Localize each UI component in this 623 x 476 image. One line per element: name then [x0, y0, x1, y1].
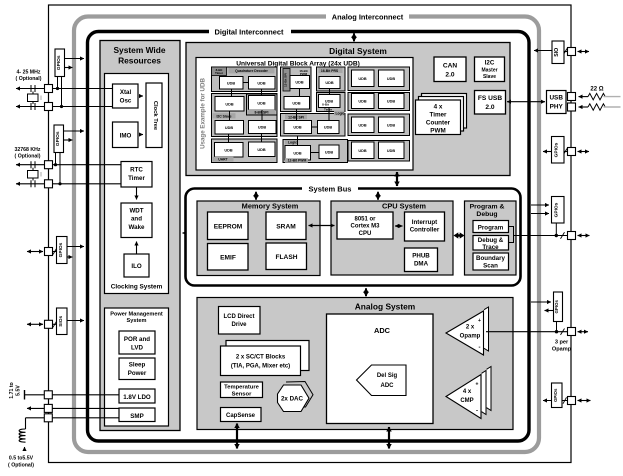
- svg-text:Program: Program: [478, 224, 504, 231]
- svg-text:22 Ω: 22 Ω: [590, 87, 603, 93]
- svg-text:2.0: 2.0: [485, 104, 494, 111]
- svg-text:Opamp: Opamp: [552, 347, 572, 353]
- svg-text:GPIOs: GPIOs: [554, 202, 560, 217]
- svg-text:( Optional): ( Optional): [15, 154, 41, 160]
- svg-text:UDB: UDB: [358, 100, 366, 104]
- svg-text:ILO: ILO: [131, 263, 141, 270]
- svg-text:UDB: UDB: [257, 81, 265, 85]
- svg-text:I2C: I2C: [485, 60, 495, 67]
- svg-text:FLASH: FLASH: [276, 254, 298, 261]
- svg-text:UDB: UDB: [387, 100, 395, 104]
- svg-text:Xtal: Xtal: [120, 89, 132, 96]
- svg-text:Quadrature Decoder: Quadrature Decoder: [235, 69, 268, 73]
- svg-text:UDB: UDB: [227, 81, 235, 85]
- svg-text:EMIF: EMIF: [220, 255, 236, 262]
- svg-text:Osc: Osc: [120, 98, 132, 105]
- svg-text:1.71 to: 1.71 to: [9, 382, 15, 398]
- svg-text:Opamp: Opamp: [460, 334, 481, 340]
- svg-text:ADC: ADC: [374, 326, 391, 335]
- svg-text:Usage Example for UDB: Usage Example for UDB: [200, 78, 207, 149]
- svg-text:Analog System: Analog System: [355, 302, 416, 312]
- svg-text:3 per: 3 per: [555, 340, 569, 346]
- svg-text:UDB: UDB: [387, 77, 395, 81]
- svg-text:Digital System: Digital System: [329, 46, 387, 56]
- svg-text:Sleep: Sleep: [129, 362, 146, 369]
- svg-text:GPIOs: GPIOs: [56, 55, 62, 70]
- svg-text:EEPROM: EEPROM: [214, 224, 243, 231]
- svg-text:Scan: Scan: [483, 263, 498, 270]
- svg-text:0.5 to5.5V: 0.5 to5.5V: [9, 456, 34, 462]
- svg-text:( Optional): ( Optional): [8, 463, 34, 469]
- svg-text:8051 or: 8051 or: [354, 217, 376, 223]
- svg-text:UDB: UDB: [257, 148, 265, 152]
- svg-text:CAN: CAN: [443, 63, 458, 70]
- svg-text:UDB: UDB: [225, 102, 233, 106]
- svg-text:Logic: Logic: [335, 112, 344, 116]
- svg-text:Timer: Timer: [215, 71, 224, 75]
- svg-text:GPIOs: GPIOs: [58, 242, 64, 257]
- svg-text:-: -: [476, 409, 478, 415]
- svg-text:Wake: Wake: [129, 224, 145, 231]
- svg-text:Timer: Timer: [128, 175, 145, 182]
- svg-text:+: +: [476, 382, 479, 388]
- svg-text:Drive: Drive: [231, 322, 247, 328]
- svg-text:FS USB: FS USB: [478, 95, 502, 102]
- svg-text:IMO: IMO: [120, 133, 132, 140]
- svg-text:Power Management: Power Management: [110, 312, 163, 318]
- svg-text:SMP: SMP: [130, 413, 143, 420]
- svg-text:Del Sig: Del Sig: [377, 373, 398, 379]
- svg-text:PHUB: PHUB: [412, 253, 430, 260]
- svg-text:2 x: 2 x: [466, 325, 475, 331]
- svg-text:USB: USB: [549, 95, 563, 102]
- svg-text:CPU System: CPU System: [382, 202, 426, 211]
- svg-text:2.0: 2.0: [445, 72, 454, 79]
- svg-text:UDB: UDB: [325, 81, 333, 85]
- svg-text:-: -: [479, 345, 481, 351]
- svg-text:UDB: UDB: [224, 148, 232, 152]
- svg-text:RTC: RTC: [130, 167, 143, 174]
- svg-text:System Wide: System Wide: [113, 45, 165, 55]
- svg-text:LCD Direct: LCD Direct: [223, 314, 254, 320]
- svg-text:UDB: UDB: [358, 123, 366, 127]
- svg-text:UDB: UDB: [325, 100, 333, 104]
- svg-text:Digital Interconnect: Digital Interconnect: [215, 27, 285, 36]
- svg-text:UDB: UDB: [358, 77, 366, 81]
- svg-text:2x DAC: 2x DAC: [281, 396, 304, 403]
- svg-text:Temperature: Temperature: [224, 385, 259, 391]
- svg-text:GPIOs: GPIOs: [55, 131, 61, 146]
- svg-text:Resources: Resources: [118, 56, 161, 66]
- svg-text:GPIOs: GPIOs: [553, 388, 558, 402]
- svg-text:UDB: UDB: [387, 149, 395, 153]
- svg-text:UDB: UDB: [225, 126, 233, 130]
- svg-text:UART: UART: [218, 158, 228, 162]
- svg-text:UDB: UDB: [258, 126, 266, 130]
- svg-text:Clock Tree: Clock Tree: [152, 101, 158, 131]
- svg-text:Boundary: Boundary: [476, 255, 505, 262]
- svg-text:Controller: Controller: [410, 227, 440, 234]
- svg-text:WDT: WDT: [129, 208, 143, 215]
- svg-text:Cortex M3: Cortex M3: [350, 224, 380, 230]
- svg-text:and: and: [131, 216, 142, 223]
- svg-text:+: +: [478, 318, 481, 324]
- svg-text:Slave: Slave: [483, 74, 496, 80]
- svg-text:DMA: DMA: [414, 261, 429, 268]
- svg-text:12-Bit SPI: 12-Bit SPI: [284, 73, 288, 87]
- svg-text:CPU: CPU: [359, 231, 372, 237]
- svg-text:Logic: Logic: [288, 141, 297, 145]
- svg-text:POR and: POR and: [124, 336, 150, 343]
- svg-text:CapSense: CapSense: [226, 413, 256, 419]
- svg-text:PWM: PWM: [430, 128, 445, 135]
- svg-text:LVD: LVD: [131, 345, 143, 352]
- svg-text:PWM: PWM: [300, 72, 308, 76]
- svg-text:Master: Master: [481, 68, 497, 74]
- svg-text:UDB: UDB: [293, 126, 301, 130]
- svg-text:(TIA, PGA, Mixer etc): (TIA, PGA, Mixer etc): [231, 364, 290, 370]
- svg-text:SIOs: SIOs: [58, 316, 64, 327]
- svg-text:32768 KHz: 32768 KHz: [15, 147, 41, 153]
- svg-text:GPIOs: GPIOs: [554, 300, 559, 314]
- svg-text:Analog Interconnect: Analog Interconnect: [332, 13, 404, 22]
- svg-text:4 x: 4 x: [463, 389, 472, 395]
- svg-text:Timer: Timer: [324, 108, 333, 112]
- svg-text:SIO: SIO: [554, 48, 560, 57]
- svg-text:UDB: UDB: [325, 150, 333, 154]
- svg-text:CMP: CMP: [460, 398, 473, 404]
- svg-text:Universal Digital Block Array: Universal Digital Block Array (24x UDB): [236, 61, 360, 68]
- svg-text:UDB: UDB: [257, 101, 265, 105]
- svg-text:4- 25 MHz: 4- 25 MHz: [17, 70, 41, 76]
- svg-text:Sensor: Sensor: [232, 391, 252, 397]
- svg-text:UDB: UDB: [358, 149, 366, 153]
- svg-text:Counter: Counter: [426, 120, 451, 127]
- svg-text:1.8V LDO: 1.8V LDO: [123, 394, 151, 401]
- svg-text:5.5V: 5.5V: [16, 385, 22, 396]
- svg-text:16-Bit PRS: 16-Bit PRS: [321, 69, 339, 73]
- svg-text:Memory System: Memory System: [242, 202, 299, 211]
- svg-text:PHY: PHY: [550, 104, 564, 111]
- svg-text:UDB: UDB: [292, 101, 300, 105]
- svg-text:GPIOs: GPIOs: [554, 142, 560, 157]
- svg-text:UDB: UDB: [293, 151, 301, 155]
- svg-text:2 x SC/CT Blocks: 2 x SC/CT Blocks: [236, 355, 286, 361]
- svg-text:( Optional): ( Optional): [16, 76, 42, 82]
- svg-text:Debug: Debug: [476, 211, 497, 218]
- svg-text:ADC: ADC: [381, 383, 395, 389]
- svg-text:Program &: Program &: [470, 204, 505, 211]
- svg-text:System: System: [127, 318, 147, 324]
- svg-text:UDB: UDB: [387, 123, 395, 127]
- svg-text:4 x: 4 x: [434, 104, 443, 111]
- svg-text:Power: Power: [128, 370, 147, 377]
- svg-text:SRAM: SRAM: [276, 224, 296, 231]
- svg-text:Trace: Trace: [482, 244, 499, 251]
- svg-text:Interrupt: Interrupt: [412, 219, 437, 226]
- svg-text:UDB: UDB: [295, 81, 303, 85]
- svg-text:12-Bit PWM: 12-Bit PWM: [288, 159, 307, 163]
- svg-text:System Bus: System Bus: [309, 185, 352, 194]
- svg-text:UDB: UDB: [324, 126, 332, 130]
- svg-text:Clocking System: Clocking System: [111, 284, 163, 291]
- svg-text:Timer: Timer: [429, 112, 447, 119]
